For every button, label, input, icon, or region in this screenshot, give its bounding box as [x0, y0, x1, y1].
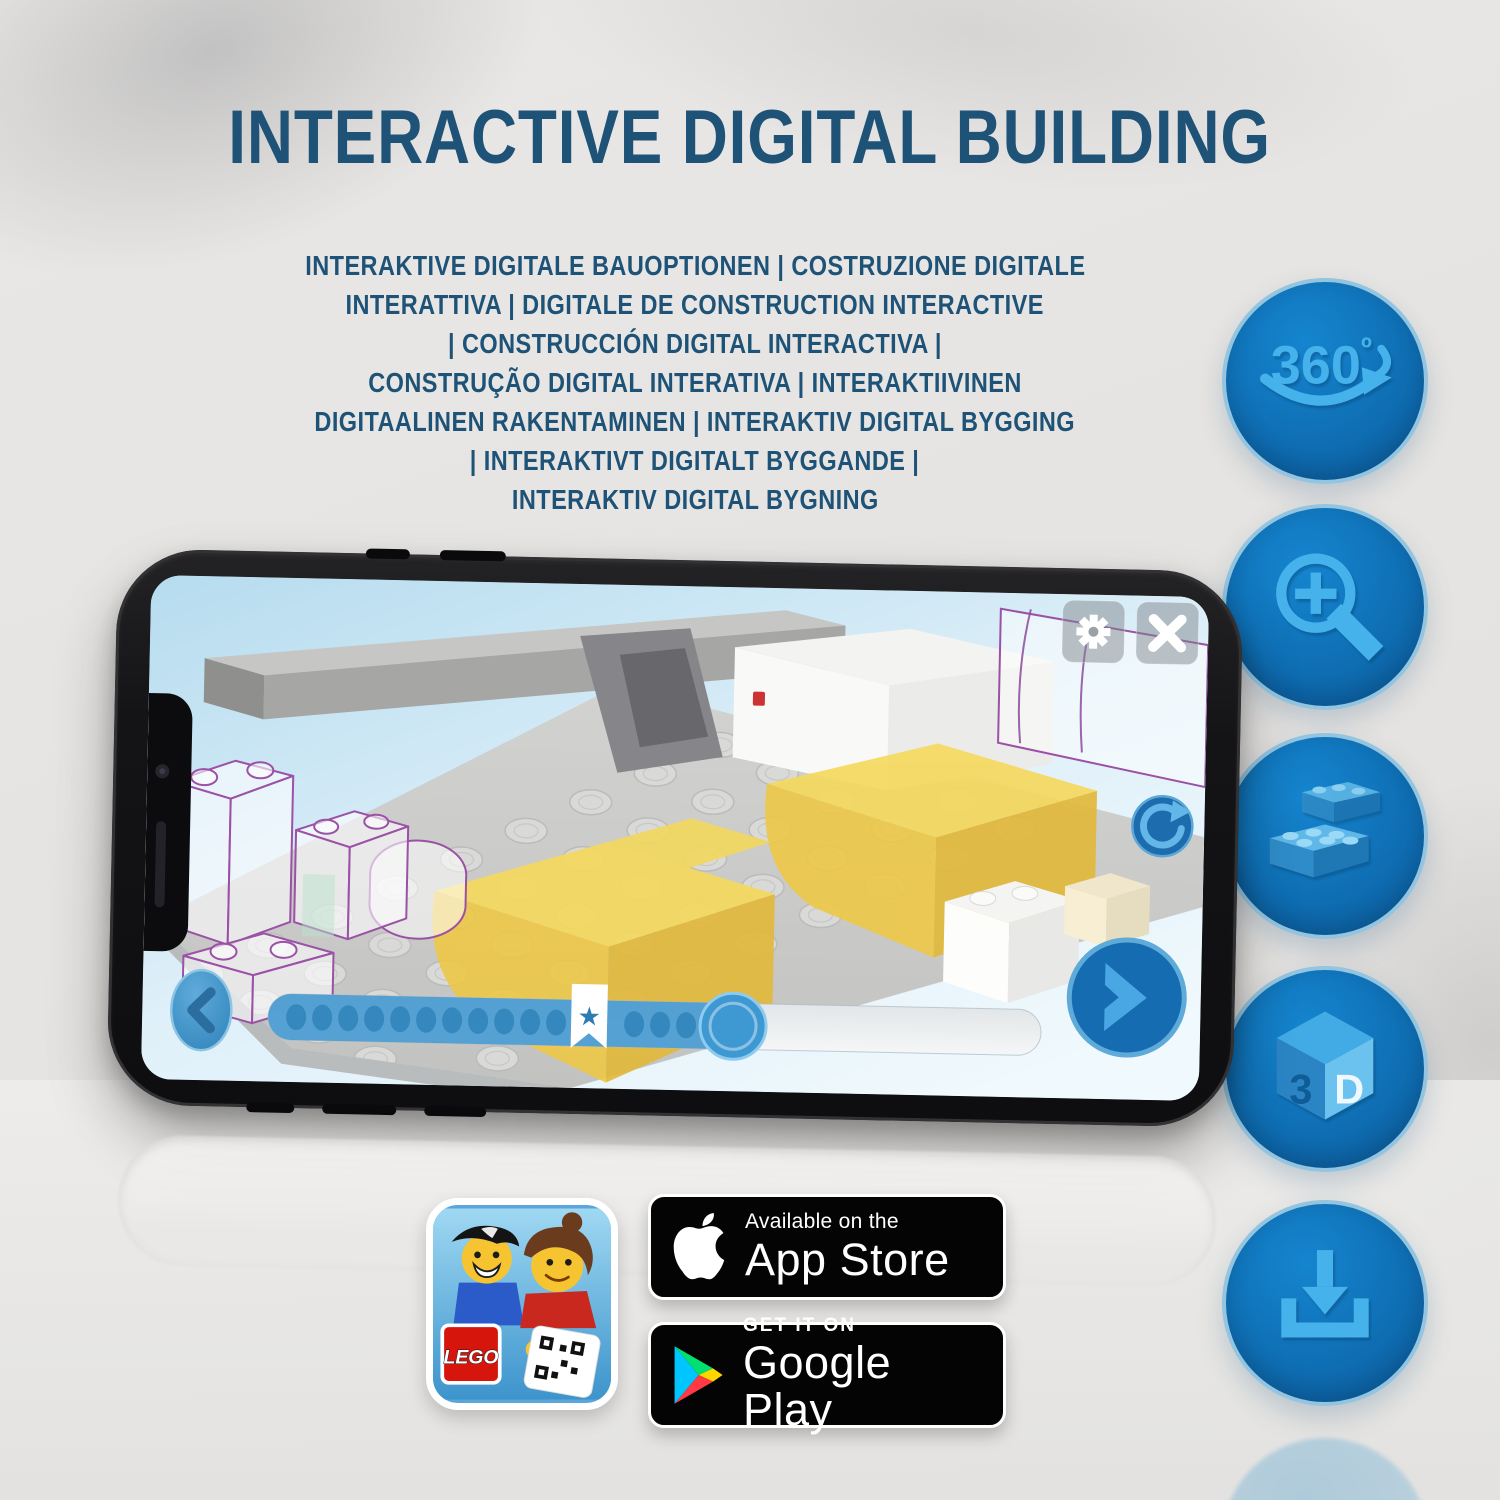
- lego-brick-icon: [1256, 767, 1394, 905]
- rotate-button[interactable]: [1132, 796, 1193, 857]
- lego-logo: LEGO: [442, 1325, 499, 1382]
- svg-text:º: º: [1361, 332, 1372, 365]
- language-line: INTERAKTIV DIGITAL BYGNING: [0, 480, 1390, 519]
- badge-title: App Store: [745, 1236, 950, 1283]
- svg-text:LEGO: LEGO: [443, 1346, 498, 1368]
- lego-app-artwork: LEGO: [433, 1205, 611, 1403]
- language-line: INTERATTIVA | DIGITALE DE CONSTRUCTION I…: [0, 285, 1390, 324]
- feature-zoom: [1222, 504, 1428, 710]
- download-icon: [1256, 1234, 1394, 1372]
- phone-frame: ★: [106, 548, 1243, 1127]
- language-line: CONSTRUÇÃO DIGITAL INTERATIVA | INTERAKT…: [0, 363, 1390, 402]
- side-button: [322, 1104, 396, 1116]
- phone-screen: ★: [141, 575, 1209, 1101]
- side-button: [424, 1106, 486, 1117]
- 360-rotation-icon: 360 º: [1256, 312, 1394, 450]
- feature-brick: [1222, 733, 1428, 939]
- feature-3d: 3 D: [1222, 966, 1428, 1172]
- badge-subtitle: Available on the: [745, 1211, 950, 1233]
- phone-notch: [144, 693, 193, 952]
- poster: INTERACTIVE DIGITAL BUILDING INTERAKTIVE…: [0, 0, 1500, 1500]
- settings-button[interactable]: [1062, 600, 1125, 663]
- side-button: [246, 1102, 294, 1113]
- qr-card: [523, 1325, 602, 1399]
- slider-knob[interactable]: [699, 993, 766, 1060]
- 3d-cube-icon: 3 D: [1256, 1000, 1394, 1138]
- language-line: DIGITAALINEN RAKENTAMINEN | INTERAKTIV D…: [0, 402, 1390, 441]
- app-store-badge[interactable]: Available on the App Store: [648, 1194, 1006, 1300]
- feature-download: [1222, 1200, 1428, 1406]
- speaker-slit: [154, 821, 166, 907]
- badge-subtitle: GET IT ON: [743, 1316, 983, 1336]
- language-line: | CONSTRUCCIÓN DIGITAL INTERACTIVA |: [0, 324, 1390, 363]
- lego-app-icon[interactable]: LEGO: [426, 1198, 618, 1410]
- close-button[interactable]: [1136, 602, 1199, 665]
- app-screen: ★: [141, 575, 1209, 1101]
- svg-text:D: D: [1334, 1067, 1364, 1113]
- phone-mockup: ★: [106, 548, 1243, 1127]
- language-line: INTERAKTIVE DIGITALE BAUOPTIONEN | COSTR…: [0, 246, 1390, 285]
- volume-button: [366, 548, 410, 559]
- language-list: INTERAKTIVE DIGITALE BAUOPTIONEN | COSTR…: [0, 246, 1390, 519]
- badge-title: Google Play: [743, 1339, 983, 1434]
- feature-icon-column: 360 º: [1222, 0, 1428, 1500]
- google-play-icon: [671, 1345, 725, 1405]
- previous-button[interactable]: [170, 969, 232, 1050]
- volume-button: [440, 550, 506, 561]
- svg-text:3: 3: [1289, 1067, 1312, 1113]
- google-play-badge[interactable]: GET IT ON Google Play: [648, 1322, 1006, 1428]
- mini-logo-detail: [753, 692, 765, 706]
- feature-360-rotation: 360 º: [1222, 278, 1428, 484]
- apple-icon: [671, 1213, 727, 1281]
- zoom-in-icon: [1256, 538, 1394, 676]
- svg-text:★: ★: [577, 1001, 601, 1031]
- language-line: | INTERAKTIVT DIGITALT BYGGANDE |: [0, 441, 1390, 480]
